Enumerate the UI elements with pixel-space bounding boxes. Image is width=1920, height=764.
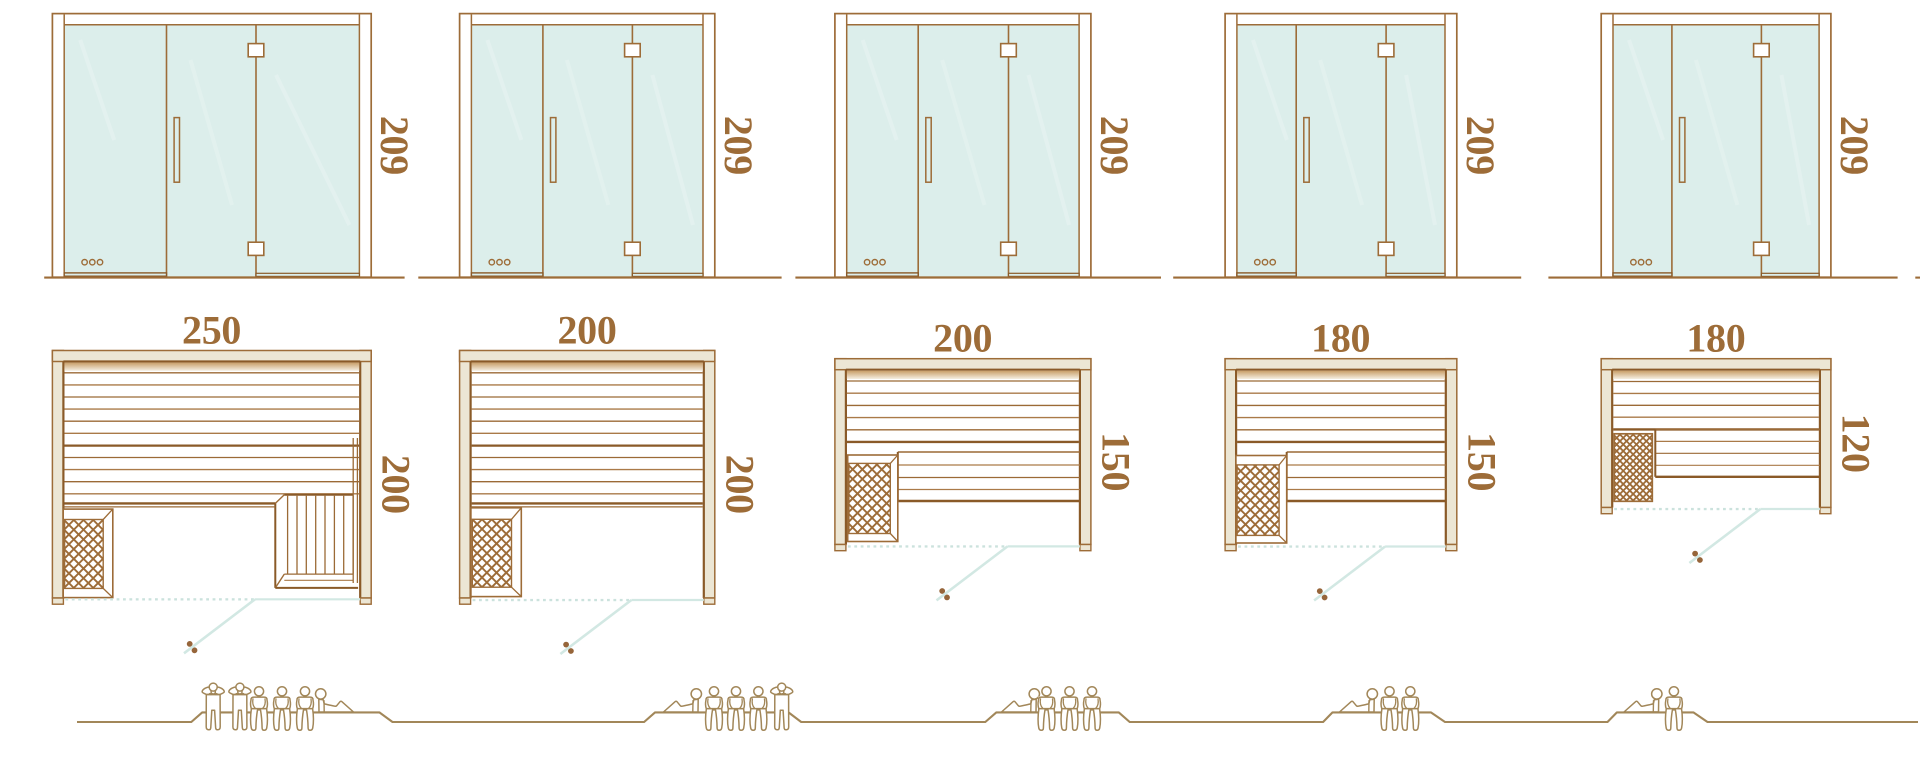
svg-text:209: 209 [1458, 116, 1503, 175]
svg-text:200: 200 [557, 308, 616, 353]
svg-text:200: 200 [374, 455, 419, 514]
svg-text:209: 209 [1092, 116, 1137, 175]
svg-text:150: 150 [1093, 432, 1138, 491]
svg-text:150: 150 [1459, 432, 1504, 491]
svg-text:180: 180 [1686, 316, 1745, 361]
svg-text:200: 200 [717, 455, 762, 514]
svg-text:200: 200 [933, 316, 992, 361]
svg-text:209: 209 [372, 116, 417, 175]
svg-text:209: 209 [1832, 116, 1877, 175]
svg-text:120: 120 [1833, 414, 1878, 473]
svg-text:180: 180 [1311, 316, 1370, 361]
svg-text:209: 209 [716, 116, 761, 175]
svg-text:250: 250 [182, 308, 241, 353]
